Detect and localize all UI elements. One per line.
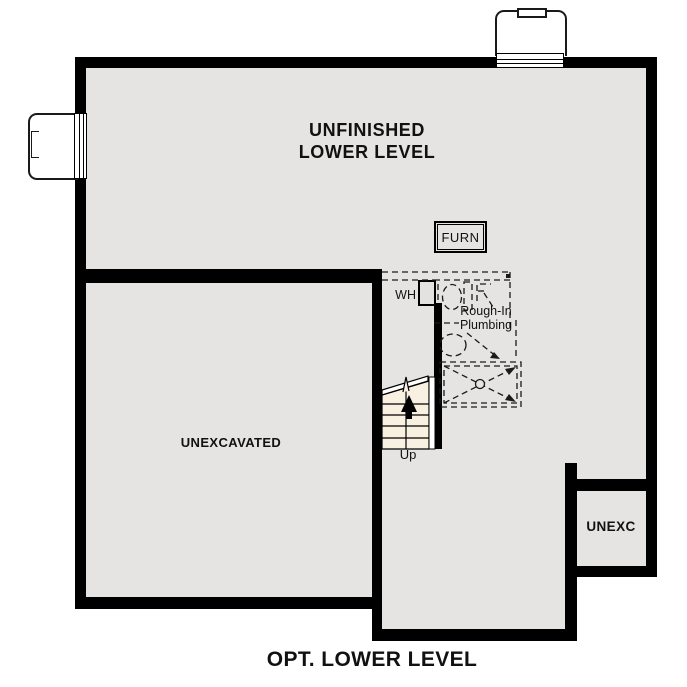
water-heater-box — [418, 280, 436, 306]
wall-unexcavated-bottom — [75, 597, 382, 609]
floor-plan: FURN — [0, 0, 687, 687]
furnace-box: FURN — [434, 221, 487, 253]
wall-right — [646, 57, 657, 577]
water-heater-label: WH — [394, 288, 416, 302]
wall-divider-vertical — [372, 269, 382, 641]
wall-stair — [434, 303, 442, 449]
window-left-line — [83, 114, 84, 178]
wall-top — [75, 57, 657, 68]
window-left — [74, 113, 87, 179]
window-top-line — [497, 59, 563, 60]
room-label-unexcavated: UNEXCAVATED — [181, 435, 281, 450]
wall-unexc-top — [577, 479, 657, 491]
room-label-line2: LOWER LEVEL — [299, 141, 436, 163]
rough-in-line2: Plumbing — [460, 319, 512, 333]
room-label-unfinished-lower-level: UNFINISHED LOWER LEVEL — [299, 119, 436, 163]
window-well-left-notch — [31, 131, 39, 158]
stairs-up-label: Up — [400, 447, 417, 462]
plan-title: OPT. LOWER LEVEL — [267, 648, 478, 672]
window-well-top-notch — [517, 8, 547, 18]
rough-in-line1: Rough-In — [460, 305, 512, 319]
window-top — [496, 53, 564, 68]
wall-bottom-main — [372, 629, 577, 641]
floor-fill-unexcavated — [86, 491, 372, 597]
room-label-line1: UNFINISHED — [299, 119, 436, 141]
wall-unexc-bottom — [565, 566, 657, 577]
rough-in-plumbing-label: Rough-In Plumbing — [460, 305, 512, 332]
wall-divider-horizontal — [75, 269, 382, 283]
floor-fill-lower-main — [382, 491, 565, 629]
room-label-unexc: UNEXC — [586, 519, 635, 534]
window-left-line — [79, 114, 80, 178]
window-top-line — [497, 63, 563, 64]
wall-unexc-left — [565, 463, 577, 641]
furnace-label: FURN — [437, 224, 484, 250]
